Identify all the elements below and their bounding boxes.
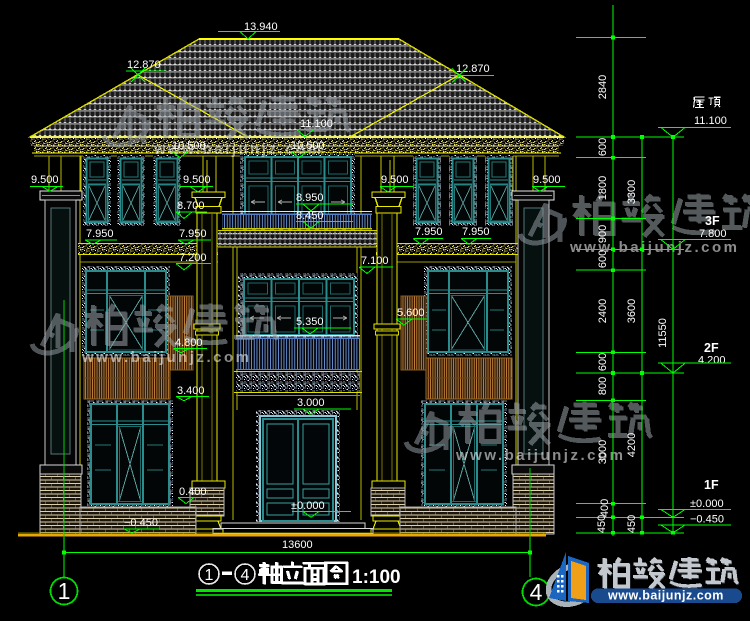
svg-text:8.450: 8.450 (296, 210, 324, 222)
svg-text:10.500: 10.500 (291, 140, 325, 152)
svg-text:13600: 13600 (282, 539, 313, 551)
svg-text:−0.450: −0.450 (690, 514, 724, 526)
svg-text:7.950: 7.950 (86, 228, 114, 240)
svg-text:11.100: 11.100 (300, 118, 333, 130)
svg-text:800: 800 (597, 377, 609, 395)
svg-text:4.800: 4.800 (175, 337, 203, 349)
svg-text:400: 400 (599, 499, 611, 517)
svg-text:5.600: 5.600 (397, 307, 425, 319)
svg-text:7.950: 7.950 (179, 228, 207, 240)
svg-text:1800: 1800 (597, 176, 609, 200)
svg-text:3.000: 3.000 (297, 397, 325, 409)
svg-text:7.100: 7.100 (361, 255, 389, 267)
svg-text:11.100: 11.100 (694, 115, 727, 127)
svg-text:−0.450: −0.450 (124, 517, 158, 529)
svg-text:600: 600 (597, 353, 609, 371)
svg-text:9.500: 9.500 (31, 174, 59, 186)
svg-text:450: 450 (626, 515, 638, 533)
svg-text:1:100: 1:100 (352, 567, 401, 588)
svg-text:600: 600 (597, 138, 609, 156)
svg-text:10.500: 10.500 (172, 140, 206, 152)
svg-text:9.500: 9.500 (183, 174, 211, 186)
svg-text:1: 1 (58, 578, 71, 604)
svg-text:±0.000: ±0.000 (690, 498, 724, 510)
svg-text:9.500: 9.500 (533, 174, 561, 186)
svg-text:5.350: 5.350 (296, 316, 324, 328)
svg-text:4.200: 4.200 (698, 355, 726, 367)
svg-text:3F: 3F (705, 214, 720, 228)
svg-text:1F: 1F (704, 478, 719, 492)
svg-text:7.800: 7.800 (699, 228, 727, 240)
svg-text:±0.000: ±0.000 (291, 500, 325, 512)
svg-text:11550: 11550 (657, 318, 669, 348)
svg-text:4200: 4200 (626, 433, 638, 457)
svg-text:8.950: 8.950 (296, 192, 324, 204)
svg-text:7.200: 7.200 (179, 252, 207, 264)
svg-text:450: 450 (596, 515, 608, 533)
svg-text:3.400: 3.400 (177, 385, 205, 397)
svg-text:2840: 2840 (597, 75, 609, 99)
svg-text:7.950: 7.950 (415, 226, 443, 238)
svg-text:9.500: 9.500 (381, 174, 409, 186)
svg-text:7.950: 7.950 (462, 226, 490, 238)
svg-text:2400: 2400 (597, 299, 609, 323)
svg-text:0.400: 0.400 (179, 486, 207, 498)
svg-text:3600: 3600 (626, 299, 638, 323)
svg-text:900: 900 (597, 225, 609, 243)
svg-text:600: 600 (597, 250, 609, 268)
svg-text:3000: 3000 (597, 440, 609, 464)
svg-text:4: 4 (530, 579, 543, 605)
svg-text:4: 4 (241, 567, 250, 584)
svg-text:8.700: 8.700 (177, 200, 205, 212)
svg-text:www.baijunjz.com: www.baijunjz.com (607, 589, 724, 603)
svg-text:2F: 2F (704, 341, 719, 355)
svg-text:1: 1 (205, 567, 214, 584)
svg-text:3300: 3300 (626, 180, 638, 204)
